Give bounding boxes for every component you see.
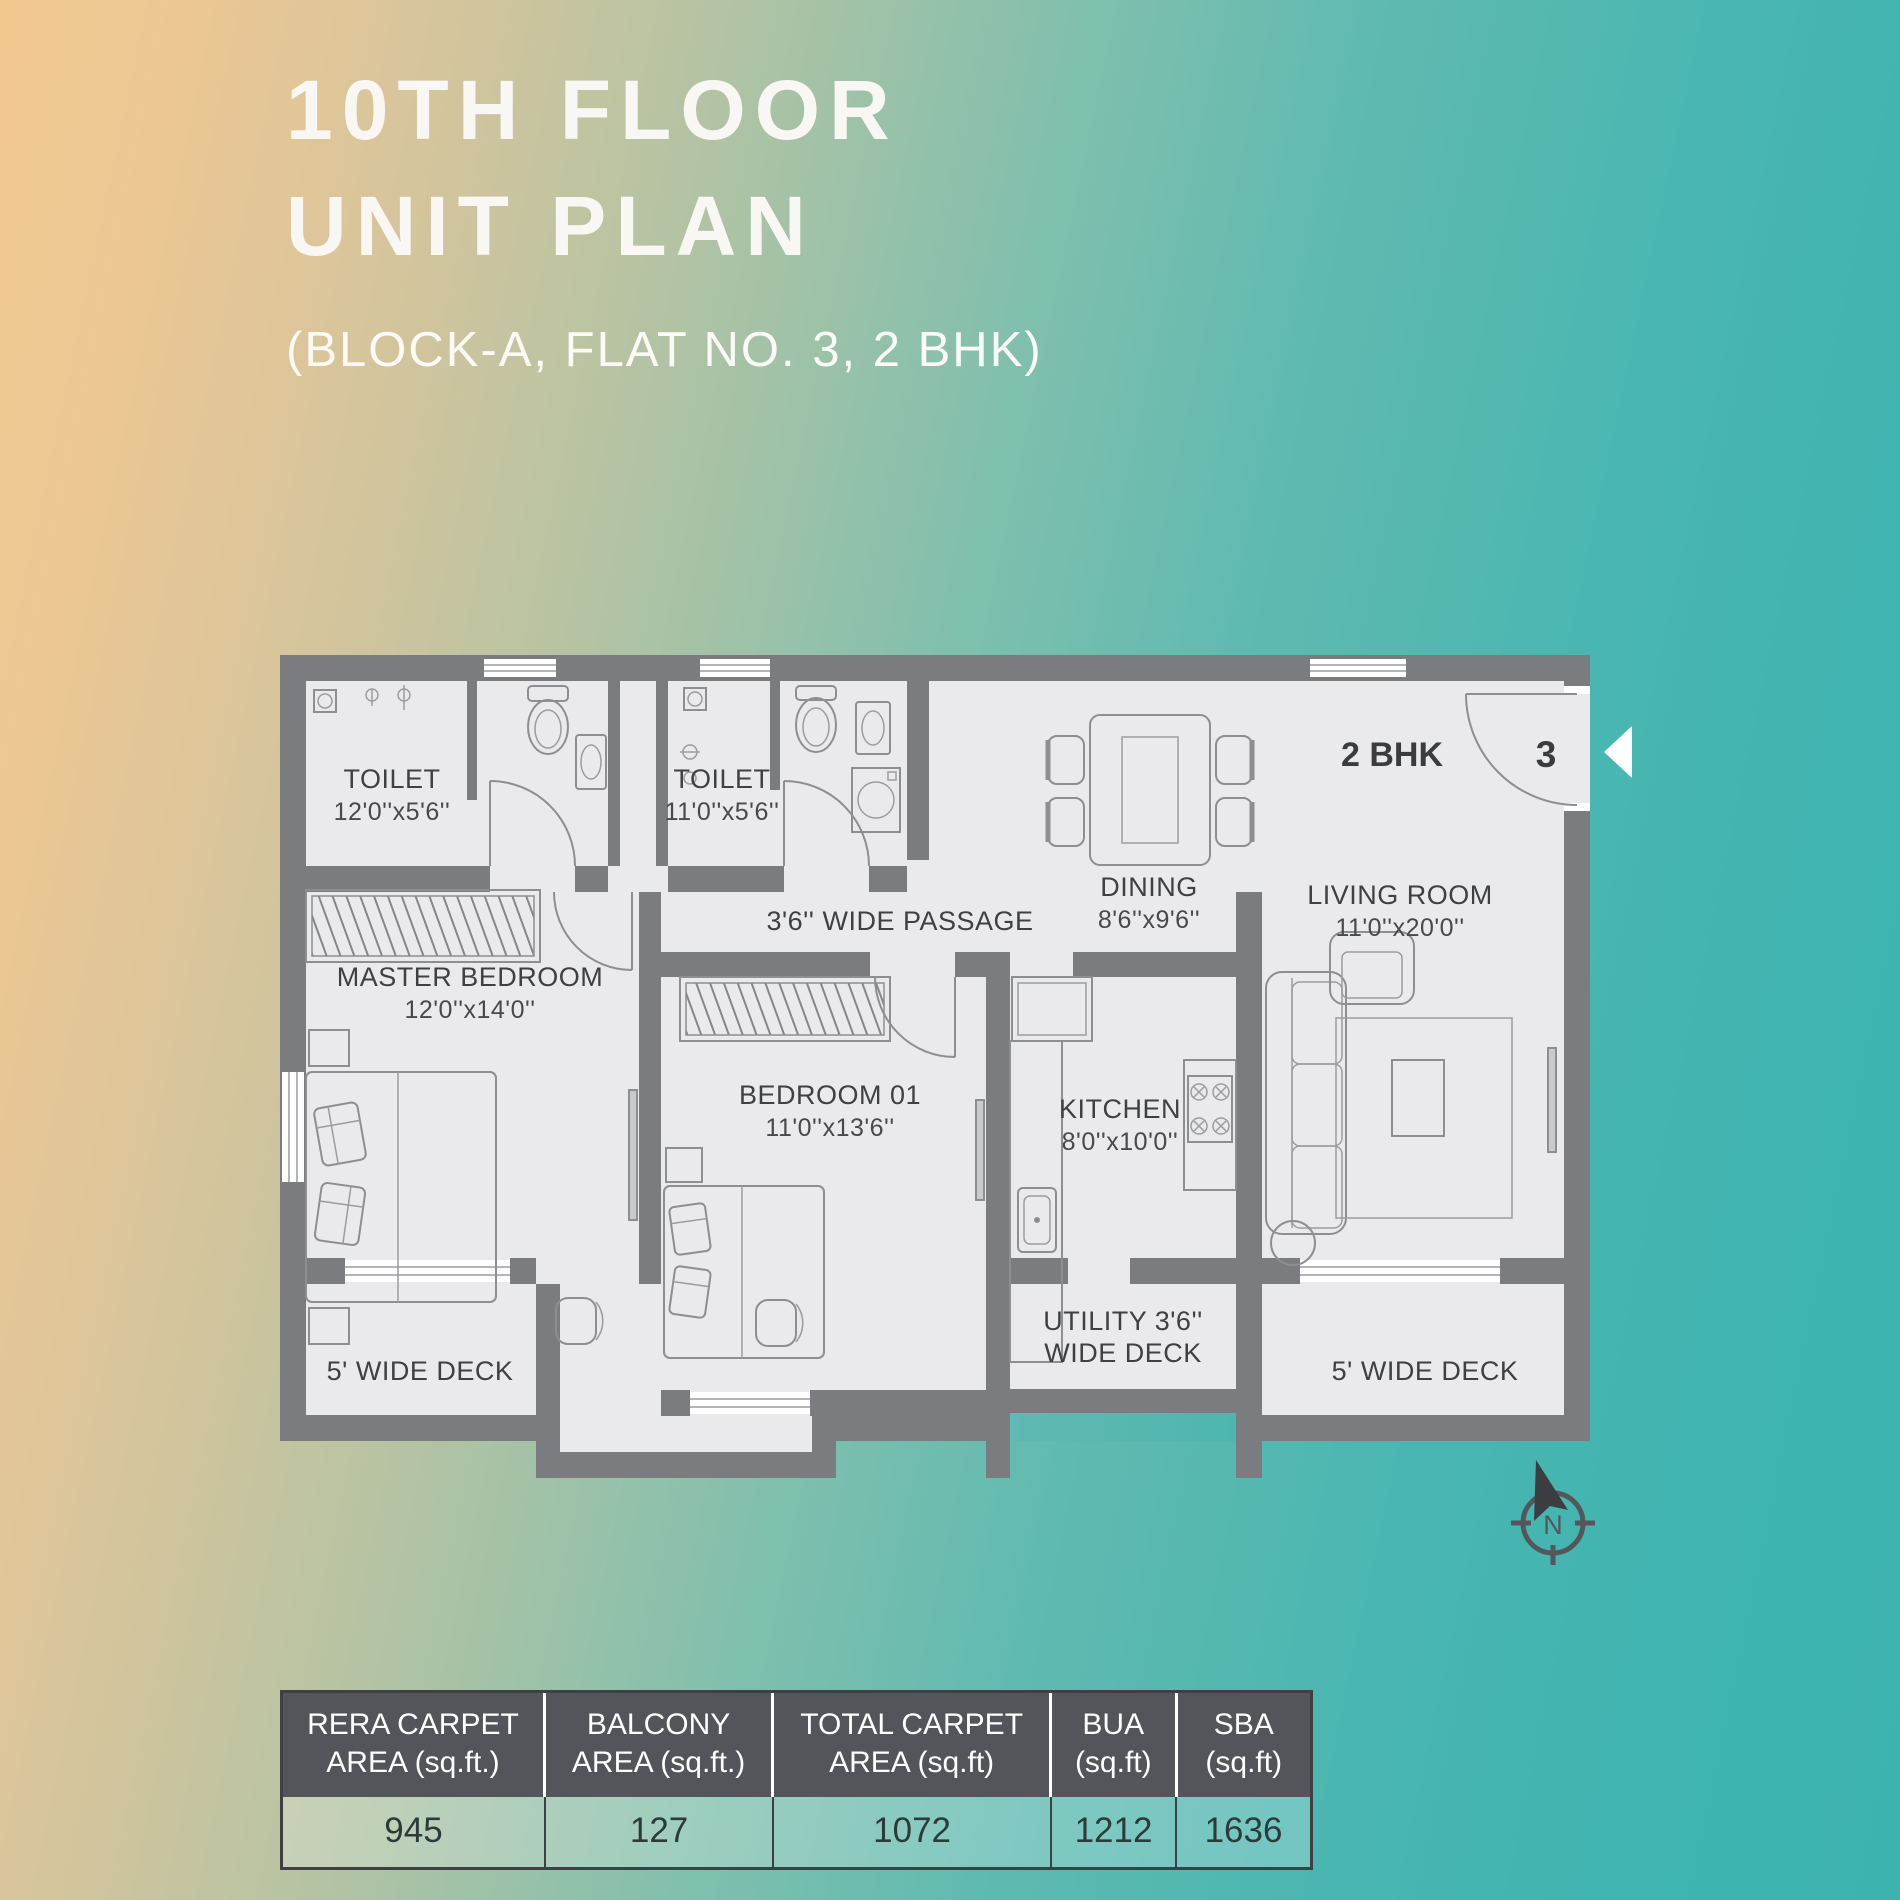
areas-table-header-rera: RERA CARPET AREA (sq.ft.) <box>283 1693 546 1797</box>
areas-table-header-total-carpet: TOTAL CARPET AREA (sq.ft) <box>774 1693 1052 1797</box>
svg-text:12'0''x14'0'': 12'0''x14'0'' <box>404 996 535 1024</box>
window-icon <box>1310 659 1406 677</box>
tv-panel-icon <box>976 1100 984 1200</box>
svg-text:WIDE DECK: WIDE DECK <box>1044 1338 1202 1368</box>
areas-table-value-row: 945 127 1072 1212 1636 <box>283 1797 1310 1867</box>
svg-text:KITCHEN: KITCHEN <box>1059 1094 1181 1124</box>
areas-table-header-balcony: BALCONY AREA (sq.ft.) <box>546 1693 774 1797</box>
svg-text:11'0''x20'0'': 11'0''x20'0'' <box>1335 914 1464 942</box>
svg-text:UTILITY 3'6'': UTILITY 3'6'' <box>1043 1306 1203 1336</box>
areas-table-header-sba: SBA (sq.ft) <box>1178 1693 1310 1797</box>
svg-text:11'0''x13'6'': 11'0''x13'6'' <box>765 1114 894 1142</box>
wardrobe-icon <box>680 977 890 1041</box>
areas-table-value-rera: 945 <box>283 1797 546 1867</box>
svg-text:8'6''x9'6'': 8'6''x9'6'' <box>1098 906 1200 934</box>
areas-table: RERA CARPET AREA (sq.ft.) BALCONY AREA (… <box>280 1690 1313 1870</box>
window-icon <box>282 1072 304 1182</box>
svg-text:TOILET: TOILET <box>343 764 440 794</box>
window-icon <box>484 659 556 677</box>
areas-table-value-total-carpet: 1072 <box>774 1797 1052 1867</box>
floor-plan: TOILET 12'0''x5'6'' TOILET 11'0''x5'6'' … <box>0 0 1900 1900</box>
svg-text:LIVING ROOM: LIVING ROOM <box>1307 880 1493 910</box>
svg-text:11'0''x5'6'': 11'0''x5'6'' <box>665 798 780 826</box>
svg-text:8'0''x10'0'': 8'0''x10'0'' <box>1062 1128 1179 1156</box>
entry-arrow-icon <box>1604 726 1632 778</box>
utility-notch <box>1010 1413 1236 1441</box>
slider-door-icon <box>345 1260 510 1282</box>
slider-door-icon <box>690 1392 810 1414</box>
door-jamb <box>1564 686 1590 694</box>
room-label-deck-right: 5' WIDE DECK <box>1332 1356 1519 1386</box>
slider-door-icon <box>1300 1260 1500 1282</box>
room-label-deck-left: 5' WIDE DECK <box>327 1356 514 1386</box>
wardrobe-icon <box>306 890 540 962</box>
areas-table-header-row: RERA CARPET AREA (sq.ft.) BALCONY AREA (… <box>283 1693 1310 1797</box>
svg-text:12'0''x5'6'': 12'0''x5'6'' <box>334 798 451 826</box>
room-label-passage: 3'6'' WIDE PASSAGE <box>766 906 1033 936</box>
page: 10TH FLOOR UNIT PLAN (BLOCK-A, FLAT NO. … <box>0 0 1900 1900</box>
svg-text:TOILET: TOILET <box>673 764 770 794</box>
unit-type-label: 2 BHK <box>1341 736 1443 774</box>
tv-panel-icon <box>1548 1048 1556 1152</box>
compass-n-label: N <box>1543 1510 1563 1540</box>
areas-table-value-balcony: 127 <box>546 1797 774 1867</box>
svg-text:DINING: DINING <box>1100 872 1198 902</box>
tv-panel-icon <box>629 1090 637 1220</box>
window-icon <box>700 659 770 677</box>
svg-text:MASTER BEDROOM: MASTER BEDROOM <box>337 962 604 992</box>
areas-table-value-bua: 1212 <box>1052 1797 1177 1867</box>
svg-text:BEDROOM 01: BEDROOM 01 <box>739 1080 921 1110</box>
areas-table-header-bua: BUA (sq.ft) <box>1052 1693 1178 1797</box>
areas-table-value-sba: 1636 <box>1177 1797 1310 1867</box>
compass-icon: N <box>1511 1460 1595 1565</box>
flat-number-label: 3 <box>1536 734 1557 775</box>
